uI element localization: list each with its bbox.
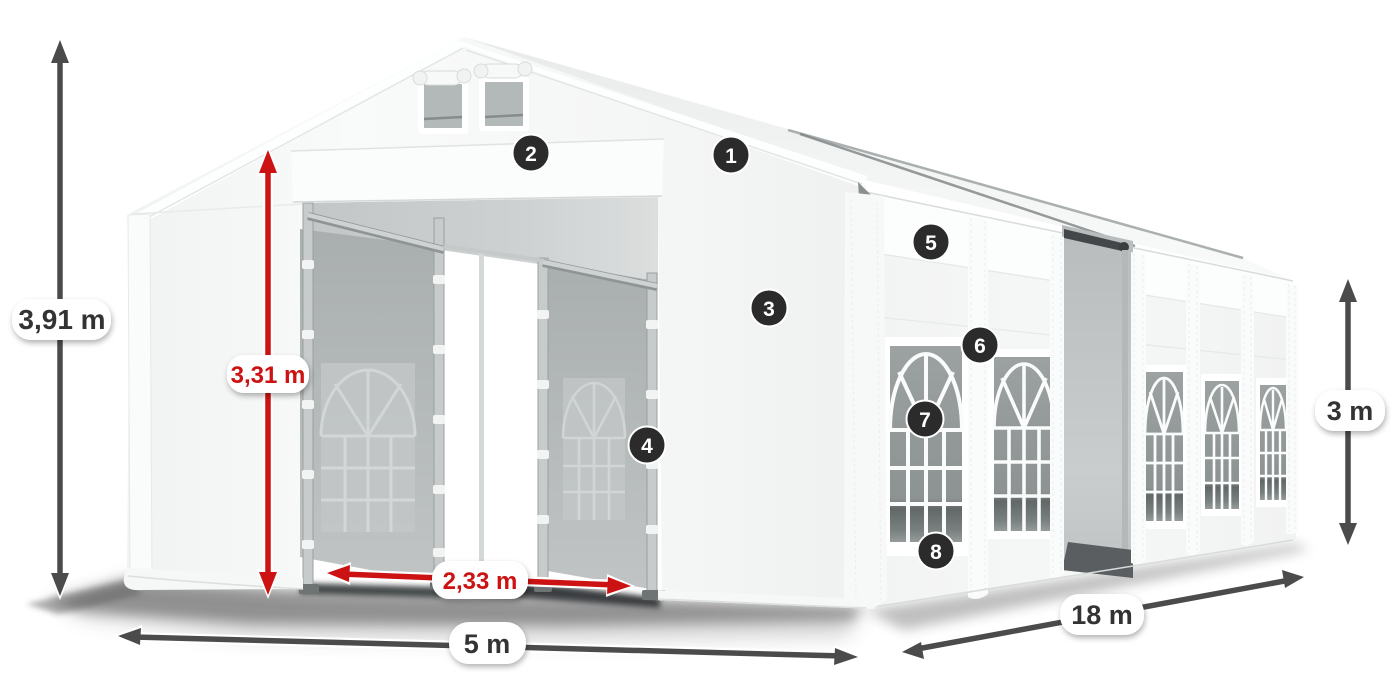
svg-text:2,33 m: 2,33 m xyxy=(443,568,518,595)
svg-text:3,31 m: 3,31 m xyxy=(231,362,306,389)
svg-text:5: 5 xyxy=(925,232,937,255)
svg-text:2: 2 xyxy=(525,143,537,166)
svg-text:3: 3 xyxy=(763,298,775,321)
svg-text:3 m: 3 m xyxy=(1327,396,1374,426)
svg-text:4: 4 xyxy=(641,435,653,458)
svg-text:5 m: 5 m xyxy=(464,629,511,659)
svg-text:6: 6 xyxy=(974,335,986,358)
svg-text:8: 8 xyxy=(930,541,942,564)
svg-text:18 m: 18 m xyxy=(1071,600,1133,630)
svg-text:1: 1 xyxy=(725,145,737,168)
svg-text:3,91 m: 3,91 m xyxy=(18,304,105,335)
svg-text:7: 7 xyxy=(919,409,931,432)
